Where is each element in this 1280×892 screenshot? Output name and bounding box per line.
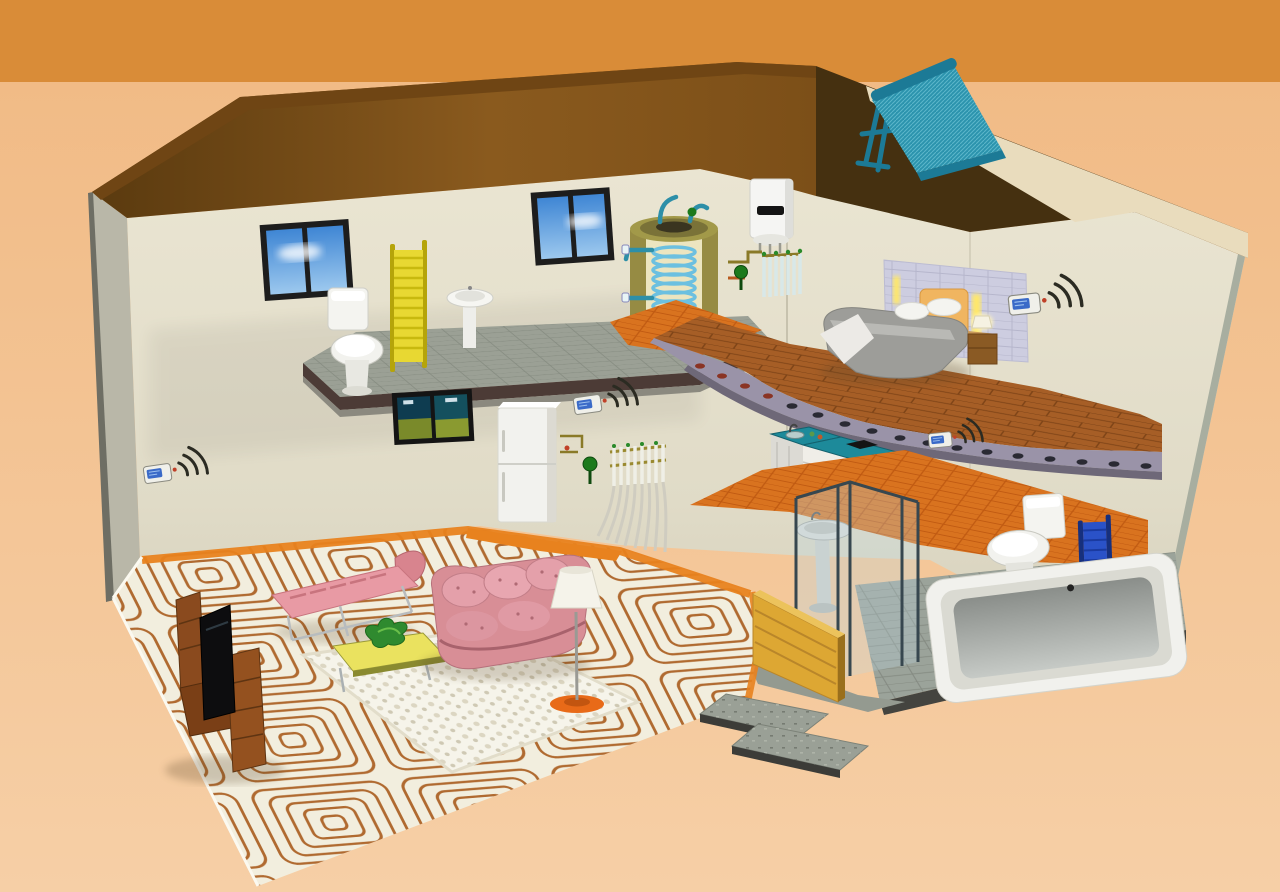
tank-valve <box>688 208 697 217</box>
wall-sconce-glow-left <box>893 276 900 304</box>
towel-radiator-yellow <box>390 240 427 372</box>
wall-art-ground-floor <box>392 389 475 445</box>
tv <box>200 605 235 720</box>
lamp-pole <box>576 612 577 700</box>
pillow <box>895 303 929 320</box>
wall-hung-boiler <box>750 179 793 254</box>
boiler-display <box>757 206 784 215</box>
bed <box>820 299 970 387</box>
nightstand-with-lamp <box>968 314 997 364</box>
circulation-pump-upper <box>735 266 748 279</box>
scene-svg <box>0 0 1280 892</box>
kitchen-sink <box>786 432 804 439</box>
table-lamp-shade <box>972 316 992 328</box>
cutaway-house-illustration <box>0 0 1280 892</box>
window-upstairs-right <box>531 187 615 265</box>
manifold-tubes <box>764 254 800 297</box>
circulation-pump-lower <box>583 457 597 471</box>
pillow <box>927 299 961 316</box>
fridge <box>498 402 561 522</box>
